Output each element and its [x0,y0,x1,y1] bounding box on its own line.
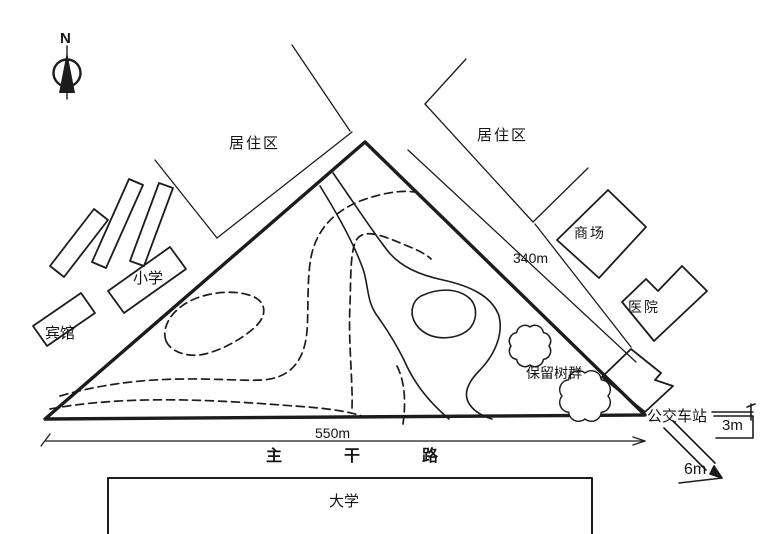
dimension-tick-left [41,434,50,446]
north-arrow-icon [54,46,81,99]
tree-cluster [509,325,550,366]
contour-line [50,400,362,416]
road-edge [292,45,350,131]
main-road-label-char: 干 [344,449,360,465]
dimension-line [673,421,715,463]
hospital-label: 医院 [628,300,660,314]
dimension-underline [679,478,722,483]
building-slab [50,209,108,277]
road-edge [155,160,217,238]
road-dimension-label: 6m [684,462,706,478]
pond [412,290,476,338]
road-edge [533,168,588,222]
north-label: N [60,31,71,46]
road-edge [425,59,466,104]
preserved-trees-label: 保留树群 [526,366,582,380]
building-bus-station [602,349,673,412]
residential-left-label: 居住区 [229,136,280,151]
university-label: 大学 [329,494,359,509]
site-plan: N 居住区 居住区 小学 宾馆 商场 医院 公交车站 保留树群 340m 550… [0,0,766,534]
mall-label: 商场 [574,226,606,240]
east-side-dimension-label: 340m [513,251,548,265]
north-arrow-needle [59,52,75,93]
bus-station-label: 公交车站 [647,409,707,424]
building-slab [92,179,143,268]
dimension-arrow [710,466,722,478]
base-dimension-label: 550m [315,426,350,440]
main-road-label-char: 主 [266,449,282,465]
hotel-label: 宾馆 [45,326,75,341]
road-lines [155,45,636,362]
main-road-label-char: 路 [422,449,438,465]
school-label: 小学 [133,271,163,286]
residential-right-label: 居住区 [477,128,528,143]
road-edge [425,104,533,222]
building-slab [130,183,173,266]
site-plan-drawing [0,0,766,534]
sidewalk-dimension-label: 3m [722,418,743,433]
road-edge [535,224,631,347]
